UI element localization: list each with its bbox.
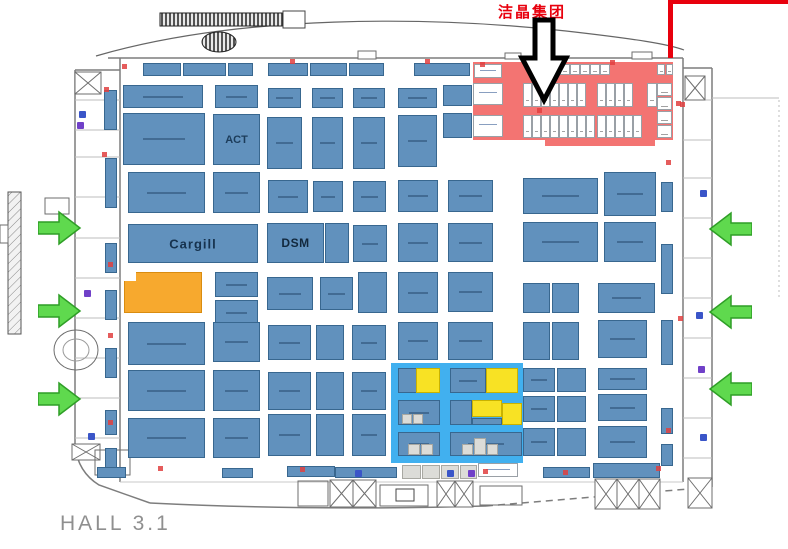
booth bbox=[335, 467, 397, 478]
booth bbox=[598, 320, 647, 358]
hall-title: HALL 3.1 bbox=[60, 512, 171, 536]
booth bbox=[600, 64, 610, 75]
facility-icon bbox=[79, 111, 86, 118]
booth bbox=[474, 438, 486, 455]
booth bbox=[661, 320, 673, 365]
booth bbox=[550, 64, 560, 75]
booth bbox=[353, 181, 386, 212]
booth bbox=[577, 115, 586, 138]
booth bbox=[657, 125, 672, 138]
door-marker bbox=[666, 160, 671, 165]
booth bbox=[559, 83, 568, 107]
booth bbox=[448, 223, 493, 262]
booth bbox=[398, 88, 437, 108]
booth bbox=[540, 64, 550, 75]
door-marker bbox=[300, 467, 305, 472]
booth bbox=[598, 283, 655, 313]
booth bbox=[421, 444, 433, 455]
booth-label: ACT bbox=[214, 134, 259, 146]
booth bbox=[580, 64, 590, 75]
door-marker bbox=[480, 62, 485, 67]
booth bbox=[416, 368, 440, 393]
booth bbox=[473, 115, 503, 137]
booth bbox=[597, 83, 606, 107]
entrance-arrow-right bbox=[38, 380, 82, 423]
highlight-zone-red bbox=[545, 140, 655, 146]
booth bbox=[523, 115, 532, 138]
booth bbox=[448, 322, 493, 360]
entrance-arrow-right bbox=[38, 209, 82, 252]
booth bbox=[353, 117, 385, 169]
booth bbox=[228, 63, 253, 76]
booth-label: DSM bbox=[268, 236, 323, 250]
booth bbox=[624, 83, 633, 107]
door-marker bbox=[108, 262, 113, 267]
door-marker bbox=[483, 469, 488, 474]
booth bbox=[316, 325, 344, 360]
booth bbox=[606, 115, 615, 138]
door-marker bbox=[158, 466, 163, 471]
facility-icon bbox=[700, 190, 707, 197]
booth-act: ACT bbox=[213, 114, 260, 165]
booth bbox=[462, 444, 473, 455]
booth-cargill: Cargill bbox=[128, 224, 258, 263]
booth bbox=[502, 403, 522, 425]
booth bbox=[657, 111, 672, 124]
booth bbox=[352, 372, 386, 410]
booth bbox=[312, 88, 343, 108]
exhibition-floor-plan: 洁晶集团 HALL 3.1 ACTCargillDSM bbox=[0, 0, 788, 549]
booth bbox=[268, 325, 311, 360]
booth bbox=[523, 428, 555, 456]
booth bbox=[557, 396, 586, 422]
booth bbox=[402, 414, 412, 424]
booth bbox=[590, 64, 600, 75]
booth bbox=[487, 444, 498, 455]
booth-dsm: DSM bbox=[267, 223, 324, 263]
booth bbox=[541, 83, 550, 107]
booth bbox=[577, 83, 586, 107]
booth bbox=[123, 85, 203, 108]
booth bbox=[349, 63, 384, 76]
booth bbox=[414, 63, 470, 76]
booth bbox=[398, 115, 437, 167]
booth bbox=[570, 64, 580, 75]
annotation-leader-line-vertical bbox=[668, 0, 673, 58]
booth bbox=[624, 115, 633, 138]
entrance-arrow-left bbox=[708, 370, 752, 413]
booth bbox=[422, 465, 440, 479]
booth bbox=[316, 372, 344, 410]
booth bbox=[448, 180, 493, 212]
booth bbox=[268, 63, 308, 76]
booth bbox=[97, 467, 126, 478]
booth bbox=[666, 64, 673, 75]
booth bbox=[598, 368, 647, 390]
booth bbox=[550, 83, 559, 107]
booth bbox=[183, 63, 226, 76]
booth bbox=[128, 418, 205, 458]
booth bbox=[213, 370, 260, 411]
booth bbox=[532, 83, 541, 107]
booth bbox=[657, 64, 665, 75]
entrance-arrow-left bbox=[708, 293, 752, 336]
door-marker bbox=[666, 428, 671, 433]
booth bbox=[661, 182, 673, 212]
booth bbox=[352, 414, 386, 456]
booth bbox=[105, 290, 117, 320]
booth bbox=[560, 64, 570, 75]
booth bbox=[398, 322, 438, 360]
door-marker bbox=[678, 316, 683, 321]
annotation-label: 洁晶集团 bbox=[498, 1, 566, 22]
door-marker bbox=[104, 87, 109, 92]
booth bbox=[398, 223, 438, 262]
door-marker bbox=[656, 466, 661, 471]
booth bbox=[267, 117, 302, 169]
booth bbox=[647, 83, 657, 107]
booth bbox=[615, 83, 624, 107]
booth bbox=[352, 325, 386, 360]
booth bbox=[358, 272, 387, 313]
booth bbox=[615, 115, 624, 138]
booth bbox=[523, 178, 598, 214]
booth bbox=[552, 283, 579, 313]
booth bbox=[657, 97, 672, 110]
booth bbox=[557, 428, 586, 456]
booth bbox=[472, 400, 502, 417]
booth bbox=[606, 83, 615, 107]
booth bbox=[215, 272, 258, 297]
booth bbox=[105, 243, 117, 273]
entrance-arrow-left bbox=[708, 210, 752, 253]
booth bbox=[443, 85, 472, 106]
facility-icon bbox=[355, 470, 362, 477]
booth bbox=[550, 115, 559, 138]
door-marker bbox=[108, 333, 113, 338]
facility-icon bbox=[84, 290, 91, 297]
booth bbox=[557, 368, 586, 392]
door-marker bbox=[425, 59, 430, 64]
booth bbox=[523, 322, 550, 360]
annotation-leader-line-horizontal bbox=[668, 0, 788, 4]
facility-icon bbox=[696, 312, 703, 319]
booth bbox=[448, 272, 493, 312]
booth bbox=[213, 418, 260, 458]
booth bbox=[541, 115, 550, 138]
booth bbox=[128, 322, 205, 365]
booth bbox=[523, 283, 550, 313]
facility-icon bbox=[468, 470, 475, 477]
booth bbox=[128, 172, 205, 213]
booth bbox=[559, 115, 568, 138]
booth bbox=[661, 444, 673, 466]
booth bbox=[143, 63, 181, 76]
booth bbox=[402, 465, 421, 479]
entrance-arrow-right bbox=[38, 292, 82, 335]
booth bbox=[398, 272, 438, 313]
booth bbox=[523, 83, 532, 107]
booth bbox=[450, 432, 522, 456]
booth bbox=[105, 158, 117, 208]
booth-label: Cargill bbox=[129, 236, 257, 251]
booth bbox=[268, 372, 311, 410]
booth bbox=[213, 322, 260, 362]
booth bbox=[598, 394, 647, 421]
booth bbox=[325, 223, 349, 263]
booth bbox=[123, 113, 205, 165]
booth bbox=[523, 222, 598, 262]
booth bbox=[287, 466, 335, 477]
door-marker bbox=[537, 108, 542, 113]
booth bbox=[398, 368, 417, 393]
booth bbox=[473, 83, 503, 105]
booth bbox=[413, 414, 423, 424]
booth bbox=[593, 463, 660, 478]
booth bbox=[633, 115, 642, 138]
booth bbox=[316, 414, 344, 456]
booth bbox=[474, 64, 502, 78]
booth bbox=[268, 180, 308, 213]
facility-icon bbox=[88, 433, 95, 440]
door-marker bbox=[102, 152, 107, 157]
booth bbox=[105, 348, 117, 378]
booth bbox=[215, 85, 258, 108]
booth bbox=[472, 418, 502, 425]
booth bbox=[568, 115, 577, 138]
booth bbox=[213, 172, 260, 213]
booth bbox=[320, 277, 353, 310]
booth bbox=[568, 83, 577, 107]
facility-icon bbox=[77, 122, 84, 129]
booth bbox=[604, 172, 656, 216]
booth bbox=[268, 88, 301, 108]
booth bbox=[353, 225, 387, 262]
booth bbox=[552, 322, 579, 360]
booth bbox=[310, 63, 347, 76]
booth bbox=[443, 113, 472, 138]
booth bbox=[523, 396, 555, 422]
facility-icon bbox=[447, 470, 454, 477]
booth bbox=[104, 90, 117, 130]
door-marker bbox=[122, 64, 127, 69]
booth bbox=[598, 426, 647, 458]
booth bbox=[604, 222, 656, 262]
facility-icon bbox=[700, 434, 707, 441]
booth bbox=[532, 115, 541, 138]
door-marker bbox=[563, 470, 568, 475]
booth bbox=[523, 368, 555, 392]
travelator bbox=[160, 11, 305, 52]
booth bbox=[222, 468, 253, 478]
booth bbox=[530, 64, 540, 75]
booth bbox=[353, 88, 385, 108]
booth bbox=[313, 181, 343, 212]
door-marker bbox=[108, 420, 113, 425]
booth bbox=[586, 115, 595, 138]
booth bbox=[486, 368, 518, 393]
booth bbox=[408, 444, 420, 455]
booth bbox=[661, 244, 673, 294]
booth bbox=[450, 400, 472, 425]
booth bbox=[450, 368, 486, 393]
door-marker bbox=[676, 101, 681, 106]
booth bbox=[312, 117, 343, 169]
door-marker bbox=[290, 59, 295, 64]
facility-icon bbox=[698, 366, 705, 373]
booth bbox=[398, 180, 438, 212]
booth bbox=[128, 370, 205, 411]
booth bbox=[657, 83, 672, 96]
door-marker bbox=[610, 60, 615, 65]
booth bbox=[267, 277, 313, 310]
booth bbox=[597, 115, 606, 138]
booth bbox=[268, 414, 311, 456]
